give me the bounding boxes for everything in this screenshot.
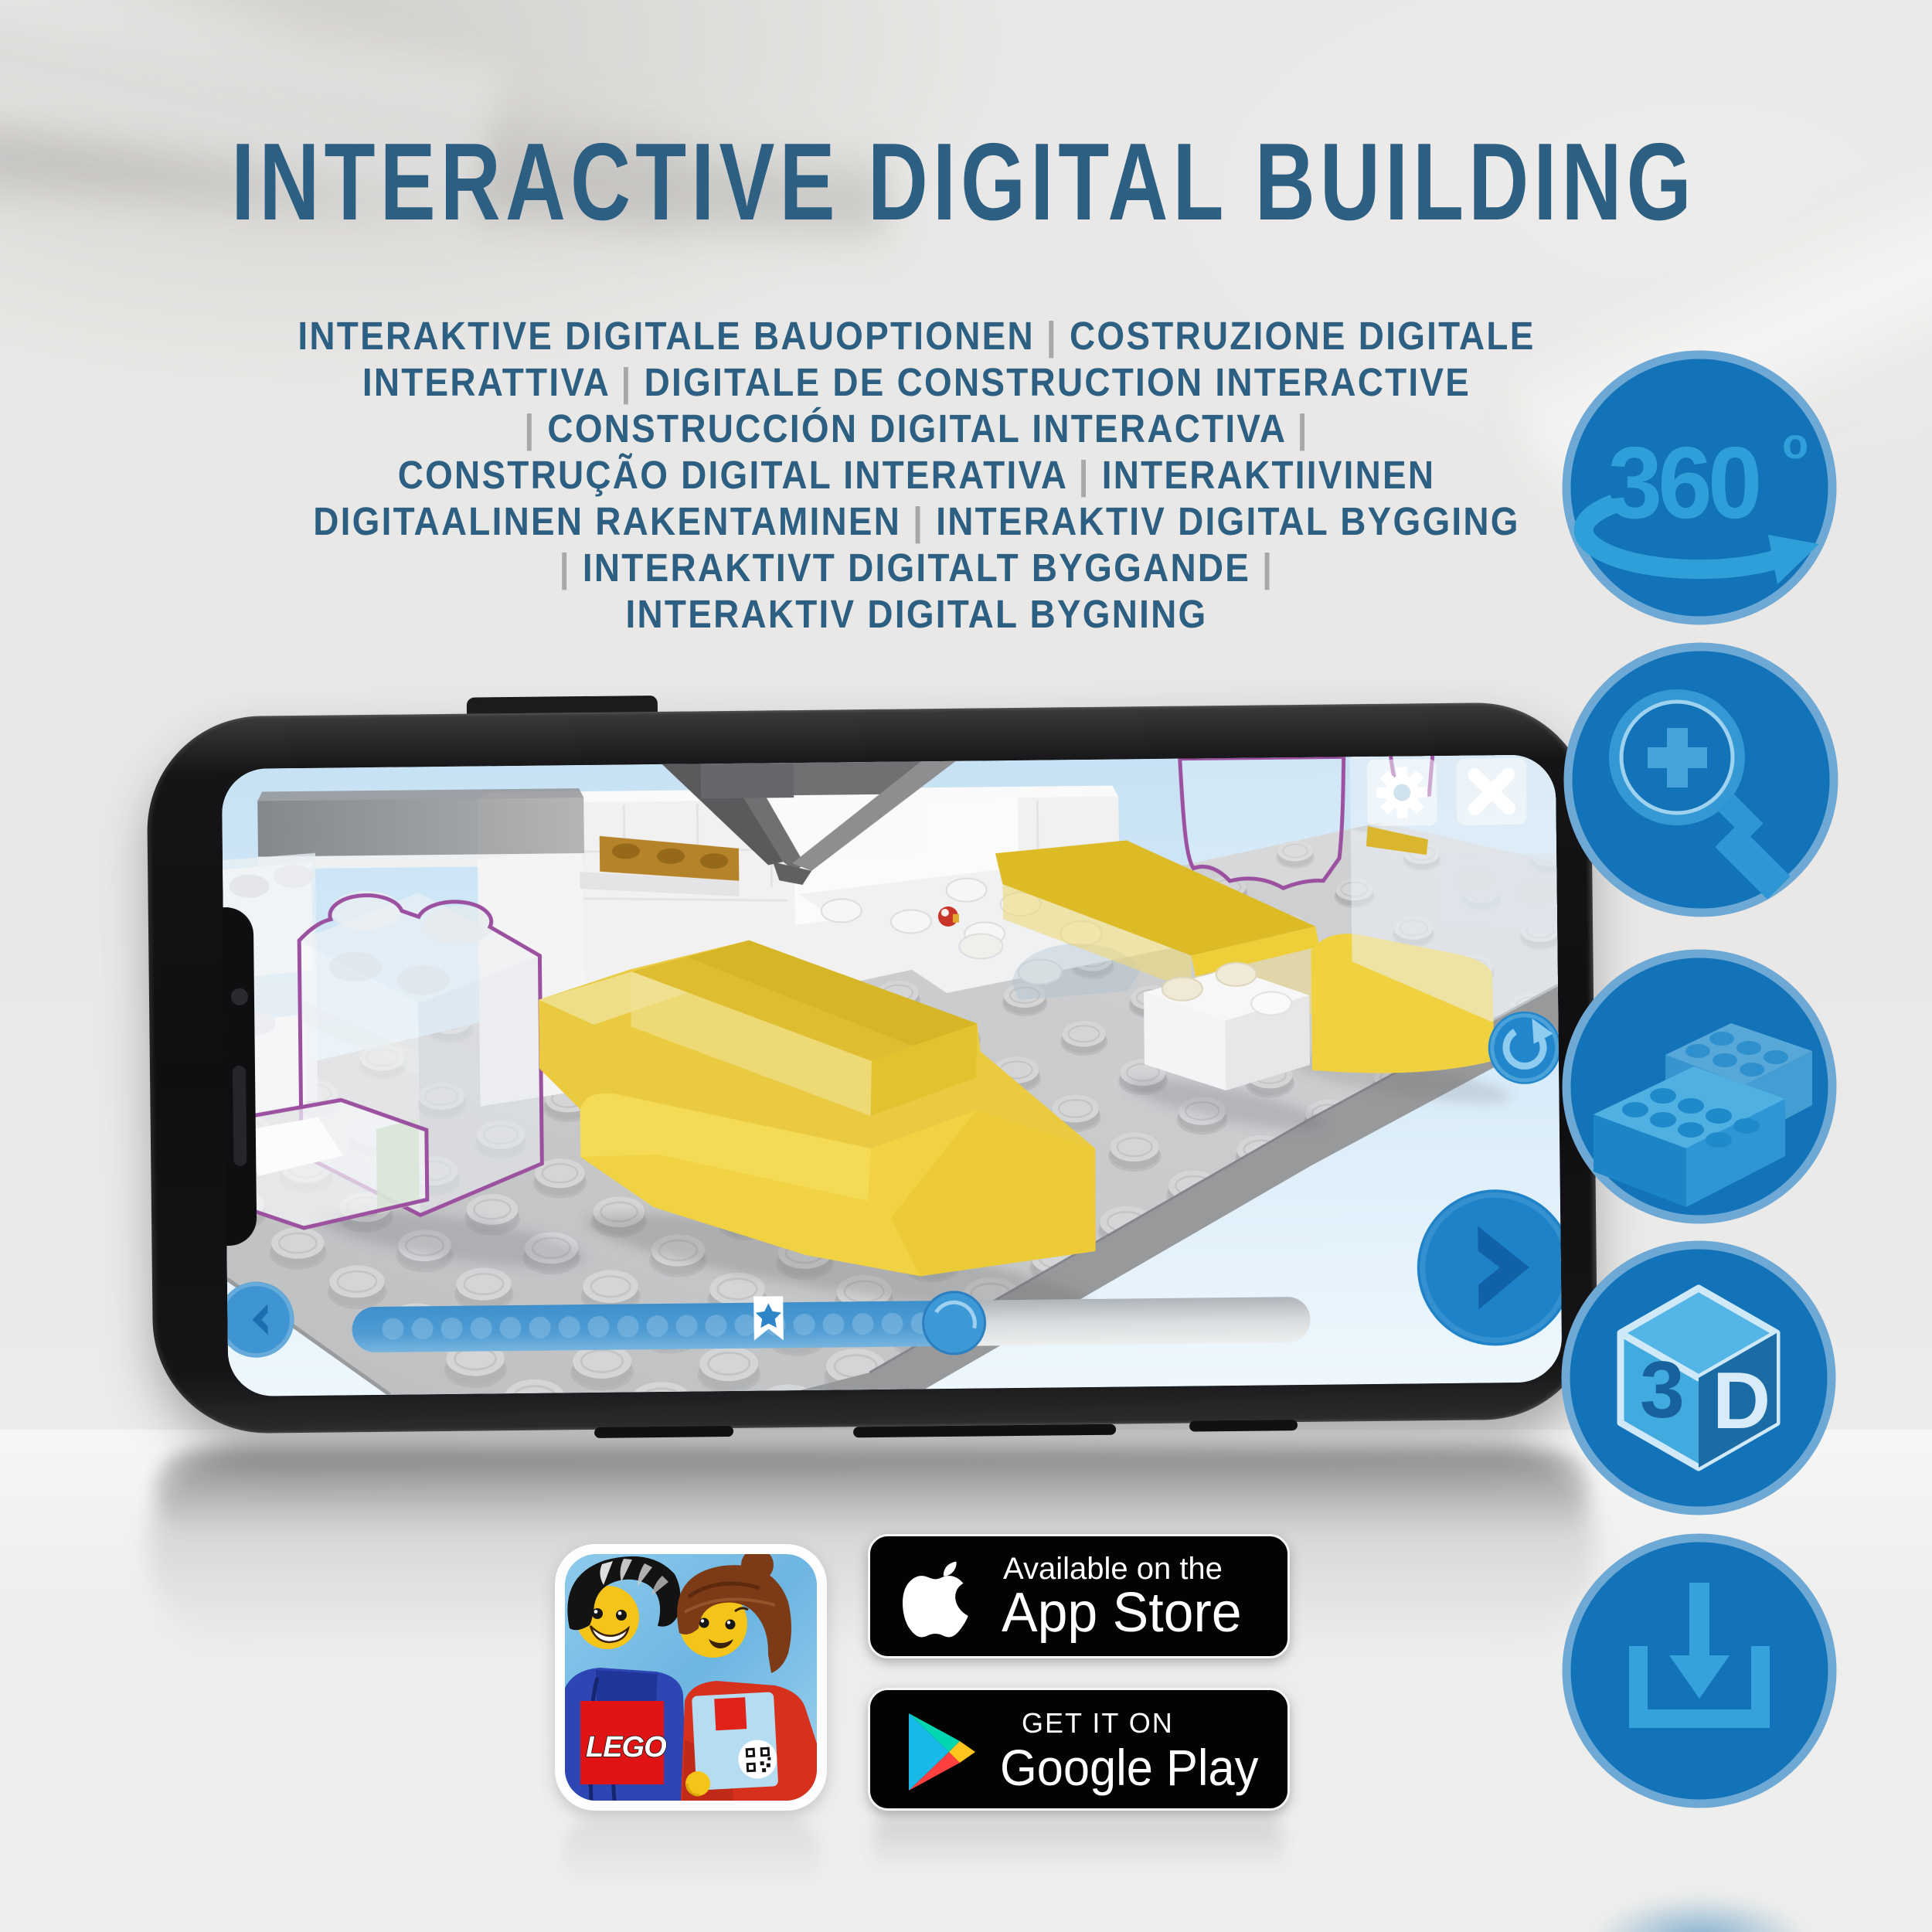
svg-text:3: 3	[1640, 1345, 1685, 1435]
svg-text:D: D	[1713, 1356, 1770, 1446]
svg-text:o: o	[1782, 419, 1808, 468]
svg-text:360: 360	[1608, 427, 1759, 540]
svg-text:LEGO: LEGO	[586, 1731, 666, 1764]
